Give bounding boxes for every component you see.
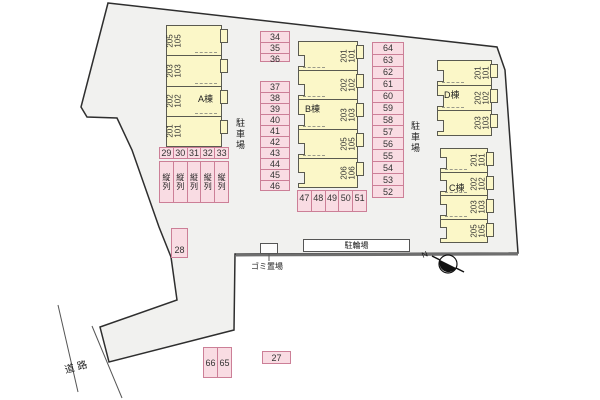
parking-space: 51: [352, 191, 366, 211]
building-a: 205 105 203 103 202 102 201 101 A棟: [166, 25, 222, 147]
stair-dash: [445, 169, 467, 170]
tandem-bay: 縦列: [200, 162, 214, 202]
parking-space: 63: [373, 54, 403, 66]
tandem-label: 縦列: [202, 173, 213, 191]
parking-row-47-51: 47 48 49 50 51: [297, 190, 367, 212]
parking-space: 52: [373, 185, 403, 197]
parking-space-28: 28: [171, 228, 188, 258]
porch-tab: [486, 176, 494, 190]
parking-lot-label-left: 駐車場: [234, 118, 247, 151]
building-c: 201 101 202 102 203 103 205 105 C棟: [440, 148, 488, 243]
porch-tab: [490, 89, 498, 103]
parking-space: 50: [338, 191, 352, 211]
unit-cell: 206 106: [299, 158, 357, 187]
unit-label: 201 101: [166, 125, 183, 138]
parking-row-66-65: 66 65: [203, 347, 232, 378]
parking-space: 27: [263, 352, 290, 363]
tandem-label: 縦列: [175, 173, 186, 191]
building-b: 201 101 202 102 203 103 205 105 206 106: [298, 41, 358, 188]
entry-notch: [437, 95, 444, 107]
unit-label: 205 105: [340, 137, 357, 150]
porch-tab: [490, 114, 498, 128]
parking-space: 35: [261, 42, 289, 53]
unit-cell: 203 103: [438, 110, 491, 135]
unit-label: 203 103: [470, 201, 487, 214]
parking-space: 42: [261, 136, 289, 147]
porch-tab: [356, 162, 364, 176]
stair-dash: [442, 82, 464, 83]
stair-dash: [303, 96, 325, 97]
stair-dash: [303, 155, 325, 156]
parking-space: 46: [261, 180, 289, 191]
unit-cell: 205 105: [167, 26, 221, 55]
porch-tab: [486, 199, 494, 213]
parking-space: 55: [373, 149, 403, 161]
entry-notch: [437, 70, 444, 82]
stair-dash: [195, 83, 217, 84]
entry-notch: [440, 157, 447, 169]
parking-space: 44: [261, 158, 289, 169]
porch-tab: [490, 64, 498, 78]
porch-tab: [486, 223, 494, 237]
entry-notch: [298, 55, 305, 67]
parking-space: 57: [373, 125, 403, 137]
parking-space: 28: [172, 229, 187, 257]
parking-tandem-bays: 縦列 縦列 縦列 縦列 縦列: [159, 161, 229, 203]
parking-space: 59: [373, 102, 403, 114]
unit-cell: 202 102: [299, 70, 357, 99]
parking-space: 65: [217, 348, 231, 377]
parking-space: 41: [261, 125, 289, 136]
unit-label: 203 103: [474, 116, 491, 129]
tandem-label: 縦列: [216, 173, 227, 191]
road-edge-line-1: [58, 305, 78, 392]
unit-label: 202 102: [166, 94, 183, 107]
parking-space: 56: [373, 137, 403, 149]
entry-notch: [440, 180, 447, 192]
tandem-label: 縦列: [188, 173, 199, 191]
parking-space: 45: [261, 169, 289, 180]
unit-label: 203 103: [166, 64, 183, 77]
building-d-name: D棟: [444, 88, 460, 101]
stair-dash: [303, 126, 325, 127]
parking-space-27: 27: [262, 351, 291, 364]
unit-label: 201 101: [474, 66, 491, 79]
porch-tab: [220, 59, 228, 73]
building-a-name: A棟: [198, 92, 213, 105]
parking-space: 37: [261, 82, 289, 92]
unit-cell: 201 101: [167, 116, 221, 146]
parking-space: 32: [200, 148, 214, 158]
garbage-area-label: ゴミ置場: [251, 261, 283, 272]
parking-col-64-52: 64 63 62 61 60 59 58 57 56 55 54 53 52: [372, 42, 404, 198]
parking-space: 62: [373, 66, 403, 78]
unit-label: 206 106: [340, 166, 357, 179]
entry-notch: [440, 204, 447, 216]
tandem-label: 縦列: [161, 173, 172, 191]
porch-tab: [220, 29, 228, 43]
entry-notch: [298, 84, 305, 96]
porch-tab: [486, 152, 494, 166]
porch-tab: [356, 74, 364, 88]
parking-space: 31: [187, 148, 201, 158]
parking-space: 53: [373, 173, 403, 185]
parking-space: 64: [373, 43, 403, 54]
unit-cell: 201 101: [299, 42, 357, 70]
parking-space: 48: [311, 191, 325, 211]
stair-dash: [442, 107, 464, 108]
unit-label: 201 101: [470, 154, 487, 167]
parking-space: 60: [373, 90, 403, 102]
stair-dash: [445, 216, 467, 217]
porch-tab: [356, 103, 364, 117]
parking-space: 43: [261, 147, 289, 158]
parking-space: 29: [160, 148, 173, 158]
parking-space: 38: [261, 92, 289, 103]
unit-cell: 205 105: [299, 129, 357, 158]
entry-notch: [298, 114, 305, 126]
unit-cell: 201 101: [438, 61, 491, 85]
unit-label: 205 105: [470, 224, 487, 237]
south-boundary-wall: [236, 254, 518, 255]
building-b-name: B棟: [305, 102, 320, 115]
unit-label: 202 102: [474, 91, 491, 104]
parking-space: 58: [373, 114, 403, 126]
tandem-bay: 縦列: [187, 162, 201, 202]
site-plan: N 205 105 203 103 202 102 201 101 A棟 201…: [0, 0, 600, 400]
parking-space: 54: [373, 161, 403, 173]
unit-label: 202 102: [470, 177, 487, 190]
parking-space: 39: [261, 103, 289, 114]
stair-dash: [195, 113, 217, 114]
unit-label: 202 102: [340, 79, 357, 92]
unit-cell: 205 105: [441, 219, 487, 243]
building-d: 201 101 202 102 203 103 D棟: [437, 60, 492, 136]
porch-tab: [356, 45, 364, 59]
parking-space: 61: [373, 78, 403, 90]
parking-space: 47: [298, 191, 311, 211]
porch-tab: [220, 120, 228, 134]
parking-space: 40: [261, 114, 289, 125]
porch-tab: [356, 133, 364, 147]
tandem-bay: 縦列: [214, 162, 228, 202]
unit-cell: 203 103: [441, 195, 487, 219]
unit-cell: 201 101: [441, 149, 487, 172]
entry-notch: [440, 227, 447, 239]
parking-space: 49: [325, 191, 339, 211]
building-c-name: C棟: [449, 181, 465, 194]
parking-space: 66: [204, 348, 217, 377]
bicycle-parking: 駐輪場: [303, 239, 410, 252]
stair-dash: [303, 67, 325, 68]
unit-label: 201 101: [340, 49, 357, 62]
parking-space: 33: [214, 148, 228, 158]
garbage-area-box: [260, 243, 278, 254]
tandem-bay: 縦列: [173, 162, 187, 202]
stair-dash: [195, 52, 217, 53]
unit-label: 203 103: [340, 108, 357, 121]
parking-space: 34: [261, 32, 289, 42]
porch-tab: [220, 90, 228, 104]
parking-row-29-33: 29 30 31 32 33: [159, 147, 229, 159]
parking-col-37-46: 37 38 39 40 41 42 43 44 45 46: [260, 81, 290, 191]
entry-notch: [437, 120, 444, 132]
unit-cell: 203 103: [167, 55, 221, 85]
parking-space: 36: [261, 53, 289, 64]
entry-notch: [298, 143, 305, 155]
unit-label: 205 105: [166, 34, 183, 47]
parking-col-34-36: 34 35 36: [260, 31, 290, 62]
entry-notch: [298, 172, 305, 184]
parking-lot-label-right: 駐車場: [409, 121, 422, 154]
parking-space: 30: [173, 148, 187, 158]
tandem-bay: 縦列: [160, 162, 173, 202]
